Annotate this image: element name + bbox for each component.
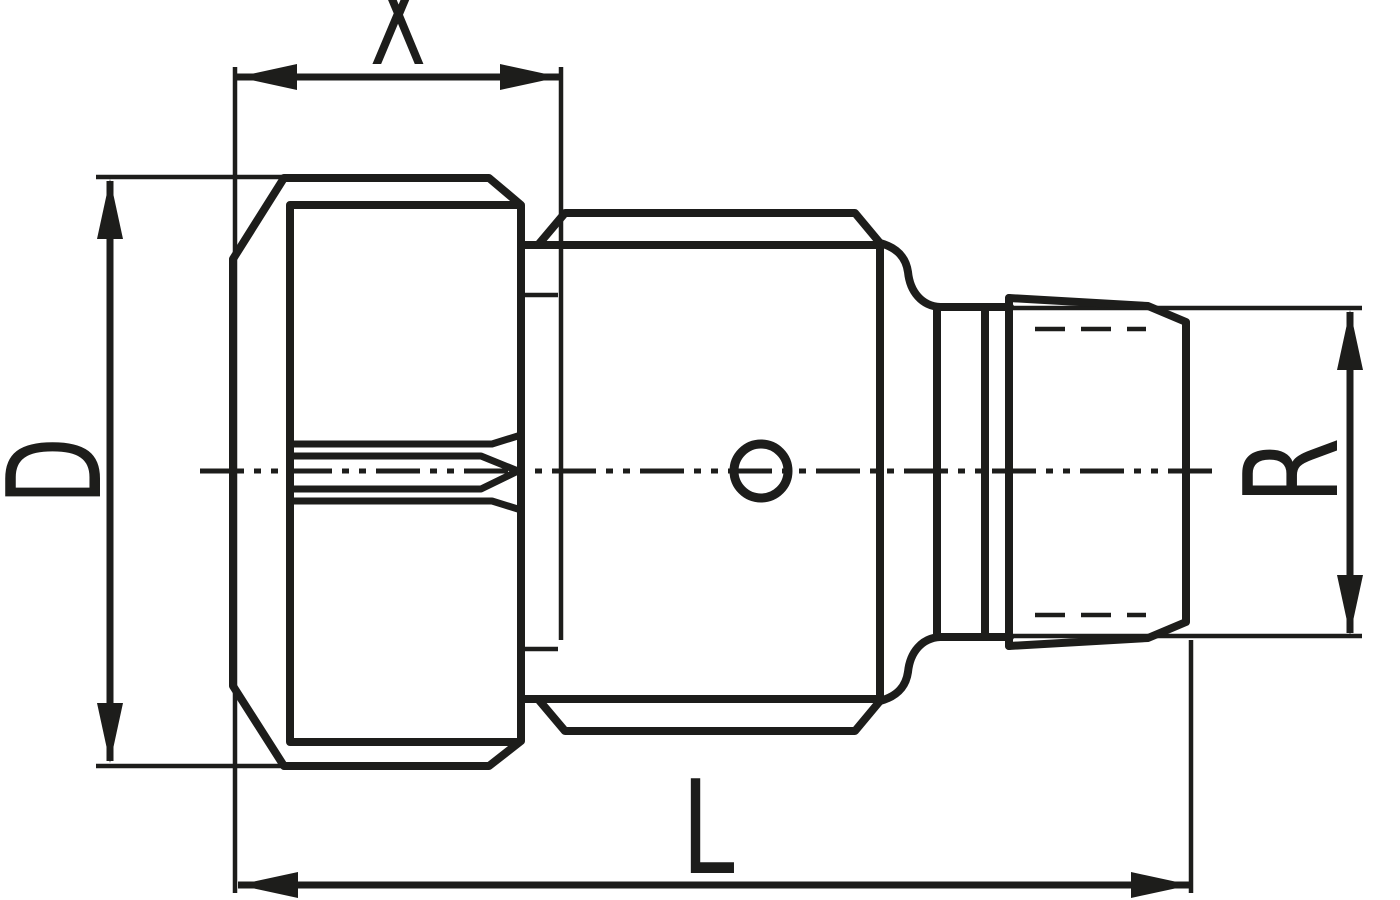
dim-l-label: L [682,752,735,900]
dim-r-label: R [1216,438,1368,505]
dim-d-label: D [0,437,131,505]
technical-drawing-page: X D R L [0,0,1400,900]
dim-x-label: X [370,0,426,95]
fitting-technical-drawing: X D R L [0,0,1400,900]
